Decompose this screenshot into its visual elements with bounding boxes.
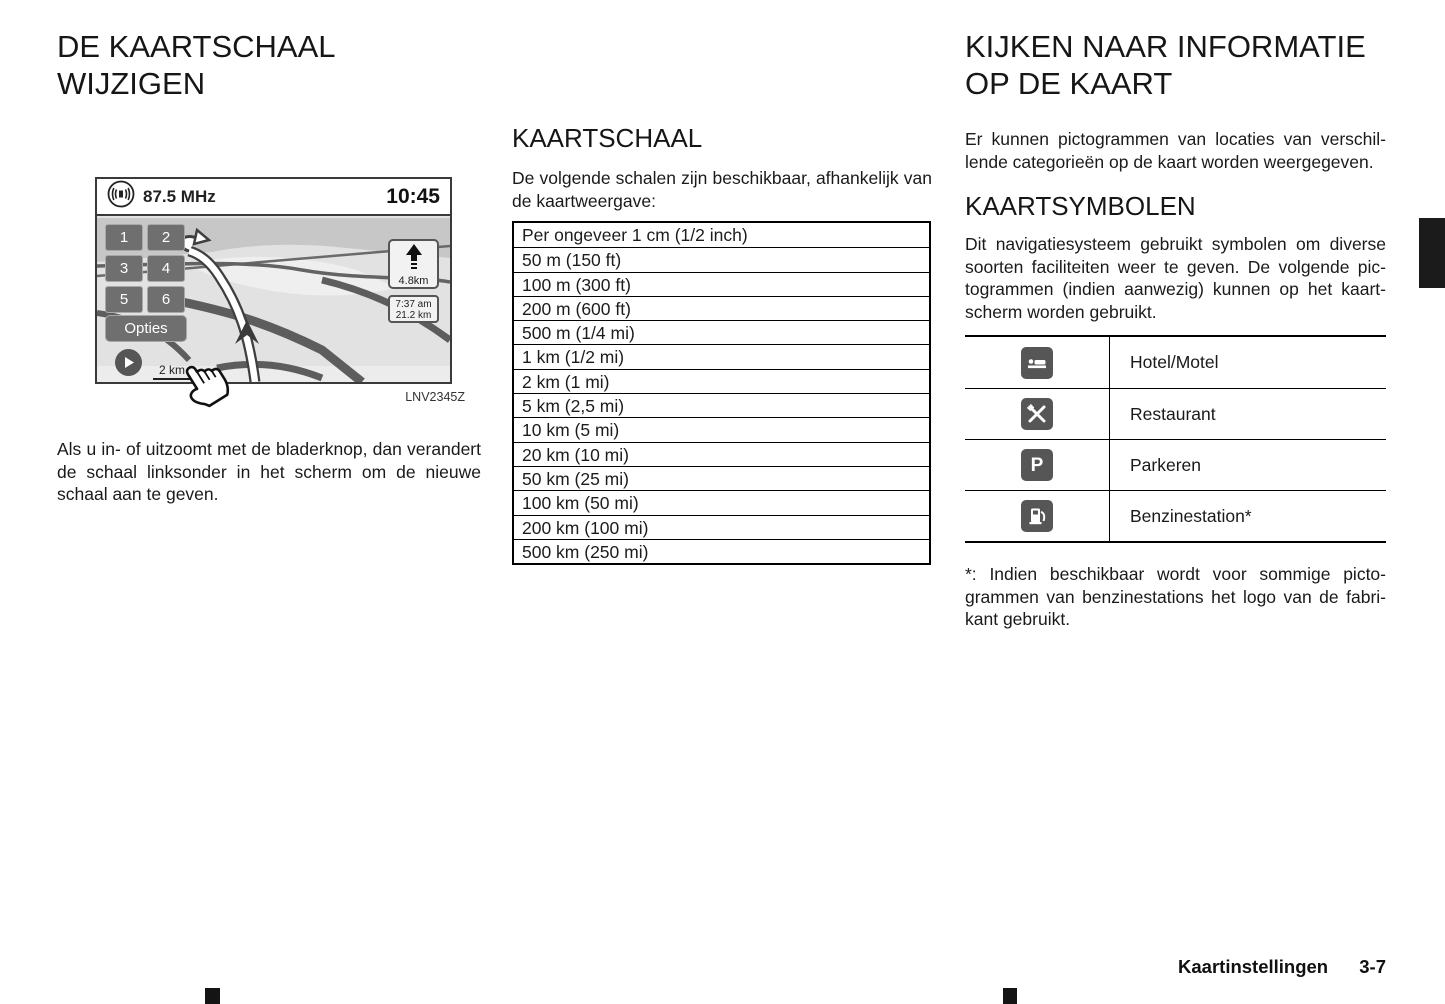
symbol-row: Hotel/Motel — [965, 337, 1386, 388]
scale-table-row: 100 km (50 mi) — [514, 490, 929, 514]
section-title-kaartschaal: KAARTSCHAAL — [512, 123, 932, 154]
scale-table-row: 200 m (600 ft) — [514, 296, 929, 320]
registration-mark — [1003, 988, 1017, 1004]
symbol-row: Restaurant — [965, 388, 1386, 439]
page-title-left: DE KAARTSCHAAL WIJZIGEN — [57, 28, 481, 102]
scale-table-row: 20 km (10 mi) — [514, 442, 929, 466]
right-body: Dit navigatiesysteem gebruikt symbolen o… — [965, 233, 1386, 323]
nav-screen: 87.5 MHz 10:45 — [95, 177, 452, 384]
scale-table-row: 2 km (1 mi) — [514, 369, 929, 393]
key-button-2: 2 — [147, 224, 185, 251]
turn-direction-box: 4.8km — [388, 239, 439, 289]
footnote: *: Indien beschikbaar wordt voor sommige… — [965, 563, 1386, 631]
symbol-label: Hotel/Motel — [1110, 337, 1386, 388]
eta-box: 7:37 am 21.2 km — [388, 295, 439, 323]
radio-frequency: 87.5 MHz — [143, 187, 216, 207]
registration-mark — [205, 988, 220, 1004]
turn-distance: 4.8km — [390, 275, 437, 287]
middle-column: KAARTSCHAAL De volgende schalen zijn bes… — [512, 28, 932, 565]
scale-table-row: 500 m (1/4 mi) — [514, 320, 929, 344]
key-button-1: 1 — [105, 224, 143, 251]
eta-time: 7:37 am — [390, 299, 437, 310]
symbol-row: P Parkeren — [965, 439, 1386, 490]
symbol-label: Parkeren — [1110, 440, 1386, 490]
scale-table-row: 200 km (100 mi) — [514, 515, 929, 539]
symbol-label: Benzinestation* — [1110, 491, 1386, 541]
options-button: Opties — [105, 315, 187, 342]
page-title-right: KIJKEN NAAR INFORMATIE OP DE KAART — [965, 28, 1386, 102]
symbol-label: Restaurant — [1110, 389, 1386, 439]
broadcast-icon — [107, 180, 135, 213]
fuel-pump-icon — [1021, 500, 1053, 532]
scale-table-row: 5 km (2,5 mi) — [514, 393, 929, 417]
key-button-5: 5 — [105, 286, 143, 313]
footer-section-title: Kaartinstellingen — [1178, 956, 1328, 977]
right-column: KIJKEN NAAR INFORMATIE OP DE KAART Er ku… — [965, 28, 1386, 631]
chapter-edge-tab — [1419, 218, 1445, 288]
eta-distance: 21.2 km — [390, 310, 437, 321]
section-title-kaartsymbolen: KAARTSYMBOLEN — [965, 191, 1386, 222]
scale-table-row: 100 m (300 ft) — [514, 272, 929, 296]
scale-table: Per ongeveer 1 cm (1/2 inch) 50 m (150 f… — [512, 221, 931, 565]
scale-table-row: 50 km (25 mi) — [514, 466, 929, 490]
scale-table-row: 10 km (5 mi) — [514, 417, 929, 441]
crossed-utensils-icon — [1021, 398, 1053, 430]
key-button-4: 4 — [147, 255, 185, 282]
scale-table-row: 50 m (150 ft) — [514, 247, 929, 271]
preset-key-grid: 1 2 3 4 5 6 — [105, 224, 185, 313]
right-intro: Er kunnen pictogrammen van locaties van … — [965, 128, 1386, 173]
play-icon — [115, 349, 142, 376]
left-paragraph: Als u in- of uitzoomt met de bladerknop,… — [57, 438, 481, 506]
scale-table-row: Per ongeveer 1 cm (1/2 inch) — [514, 223, 929, 247]
nav-topbar: 87.5 MHz 10:45 — [97, 179, 450, 216]
hand-cursor-icon — [175, 355, 239, 420]
left-column: DE KAARTSCHAAL WIJZIGEN 87.5 — [57, 28, 481, 506]
parking-icon: P — [1021, 449, 1053, 481]
scale-table-row: 500 km (250 mi) — [514, 539, 929, 563]
clock-display: 10:45 — [386, 185, 440, 209]
figure-caption: LNV2345Z — [95, 390, 465, 404]
symbols-table: Hotel/Motel Restaurant P — [965, 335, 1386, 543]
footer-page-number: 3-7 — [1359, 956, 1386, 977]
middle-intro: De volgende schalen zijn beschikbaar, af… — [512, 167, 932, 212]
key-button-6: 6 — [147, 286, 185, 313]
scale-table-row: 1 km (1/2 mi) — [514, 344, 929, 368]
key-button-3: 3 — [105, 255, 143, 282]
nav-screen-figure: 87.5 MHz 10:45 — [95, 177, 452, 404]
page-footer: Kaartinstellingen 3-7 — [1178, 956, 1386, 978]
symbol-row: Benzinestation* — [965, 490, 1386, 541]
manual-page: DE KAARTSCHAAL WIJZIGEN 87.5 — [0, 0, 1445, 1004]
up-arrow-icon — [405, 244, 423, 270]
bed-icon — [1021, 347, 1053, 379]
